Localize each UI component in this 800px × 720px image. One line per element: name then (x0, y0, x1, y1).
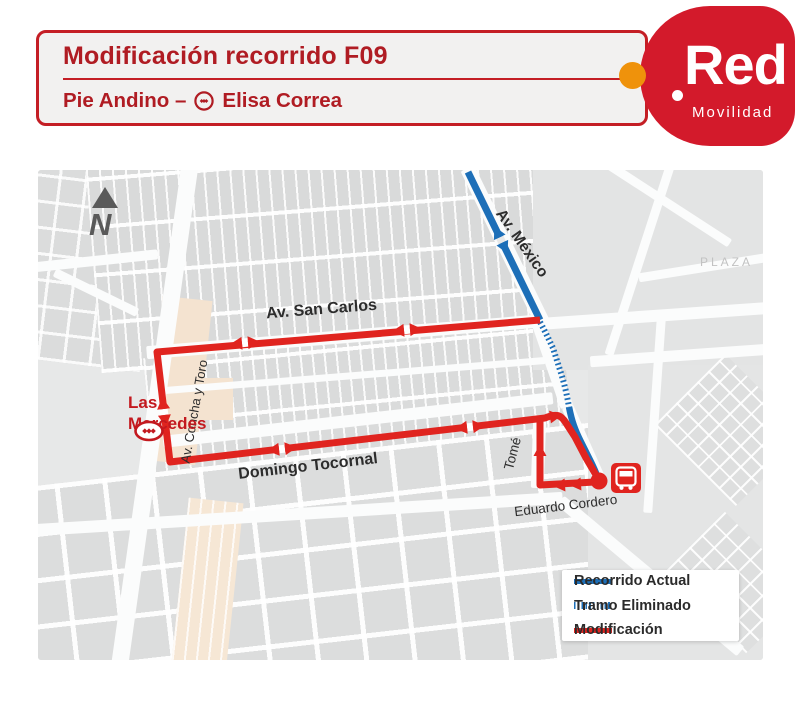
metro-station-icon (133, 420, 165, 442)
route-modification-poster: Modificación recorrido F09 Pie Andino – … (0, 0, 800, 720)
route-endpoints: Pie Andino – Elisa Correa (63, 89, 342, 113)
north-arrow-icon (92, 187, 118, 208)
logo-tagline: Movilidad (692, 104, 773, 121)
eliminated-stretch-line (540, 322, 569, 407)
north-label: N (89, 207, 111, 243)
orange-dot-accent (619, 62, 646, 89)
route-map: Av. México PLAZA Av. San Carlos Av. Conc… (38, 170, 763, 660)
map-label-plaza: PLAZA (700, 255, 753, 269)
red-movilidad-logo: Red Movilidad (640, 6, 795, 146)
north-arrow: N (83, 185, 127, 251)
map-legend: Recorrido Actual Tramo Eliminado Modific… (562, 570, 739, 641)
logo-brand-text: Red (684, 32, 787, 97)
header-divider (63, 78, 625, 80)
modification-route-line (157, 320, 599, 481)
bus-terminal-icon (611, 463, 641, 493)
route-destination: Elisa Correa (222, 89, 342, 113)
logo-dot (672, 90, 683, 101)
route-origin: Pie Andino – (63, 89, 186, 113)
header-box: Modificación recorrido F09 Pie Andino – … (36, 30, 648, 126)
metro-icon (193, 90, 215, 112)
terminal-dot (591, 473, 608, 490)
page-title: Modificación recorrido F09 (63, 42, 388, 71)
metro-station-label: Las Mercedes (48, 392, 128, 413)
